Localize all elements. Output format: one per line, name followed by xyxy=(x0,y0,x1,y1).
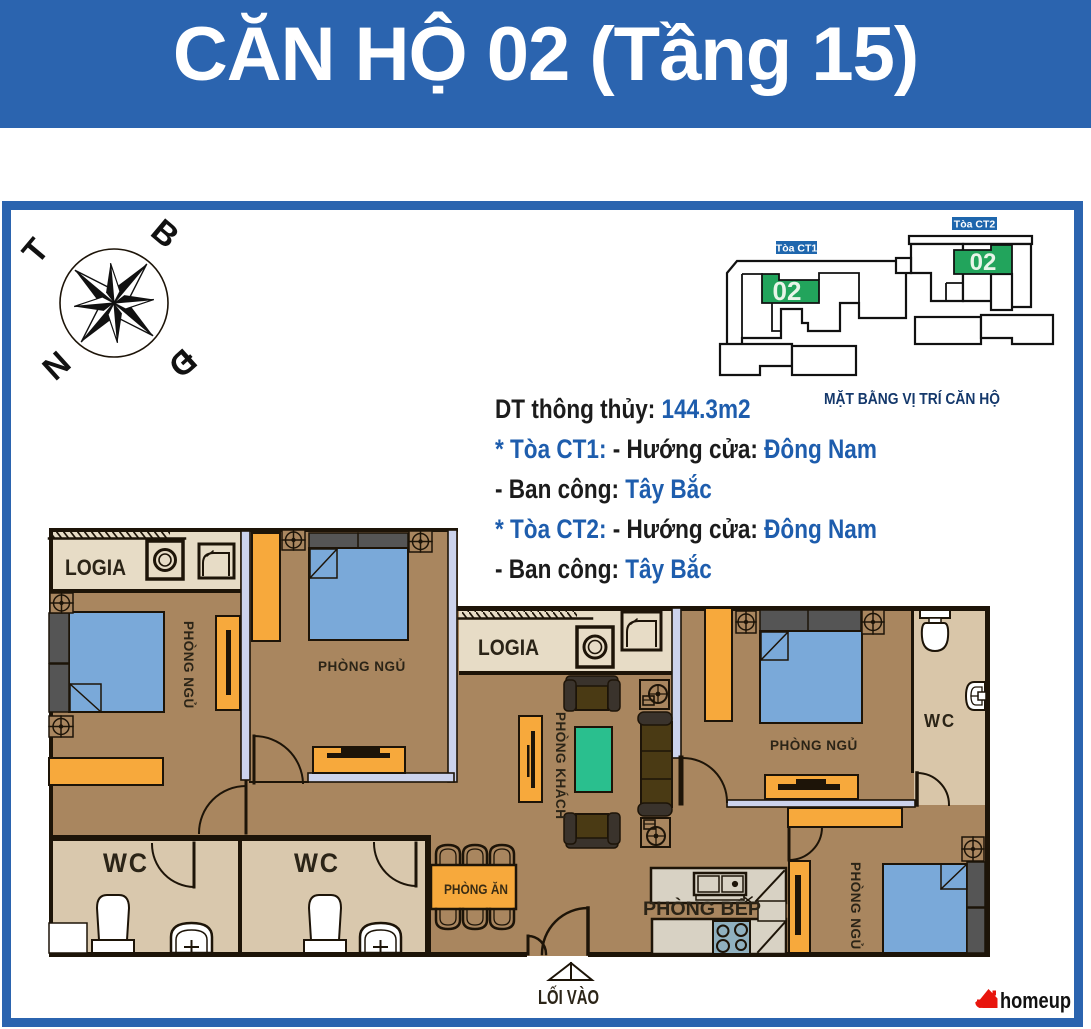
svg-text:PHÒNG NGỦ: PHÒNG NGỦ xyxy=(318,659,406,674)
svg-text:WC: WC xyxy=(103,848,149,878)
svg-text:LỐI VÀO: LỐI VÀO xyxy=(538,985,599,1009)
svg-text:MẶT BẰNG VỊ TRÍ CĂN HỘ: MẶT BẰNG VỊ TRÍ CĂN HỘ xyxy=(824,390,1000,408)
svg-text:PHÒNG NGỦ: PHÒNG NGỦ xyxy=(770,738,858,753)
svg-text:PHÒNG BẾP: PHÒNG BẾP xyxy=(643,898,761,920)
svg-text:Tòa CT1: Tòa CT1 xyxy=(776,243,818,255)
svg-text:02: 02 xyxy=(773,276,802,306)
svg-text:LOGIA: LOGIA xyxy=(65,555,126,580)
svg-text:homeup: homeup xyxy=(1000,988,1071,1013)
svg-text:02: 02 xyxy=(970,249,997,276)
svg-text:LOGIA: LOGIA xyxy=(478,635,539,660)
svg-text:PHÒNG NGỦ: PHÒNG NGỦ xyxy=(181,621,196,709)
svg-text:Đ: Đ xyxy=(161,342,203,385)
svg-text:Tòa CT2: Tòa CT2 xyxy=(954,219,996,231)
svg-text:WC: WC xyxy=(924,711,956,731)
svg-text:T: T xyxy=(15,231,56,270)
svg-text:PHÒNG KHÁCH: PHÒNG KHÁCH xyxy=(553,712,568,820)
svg-text:WC: WC xyxy=(294,848,340,878)
svg-text:PHÒNG NGỦ: PHÒNG NGỦ xyxy=(848,862,863,950)
svg-text:N: N xyxy=(35,344,77,387)
svg-text:PHÒNG ĂN: PHÒNG ĂN xyxy=(444,880,508,897)
svg-text:B: B xyxy=(144,211,186,255)
